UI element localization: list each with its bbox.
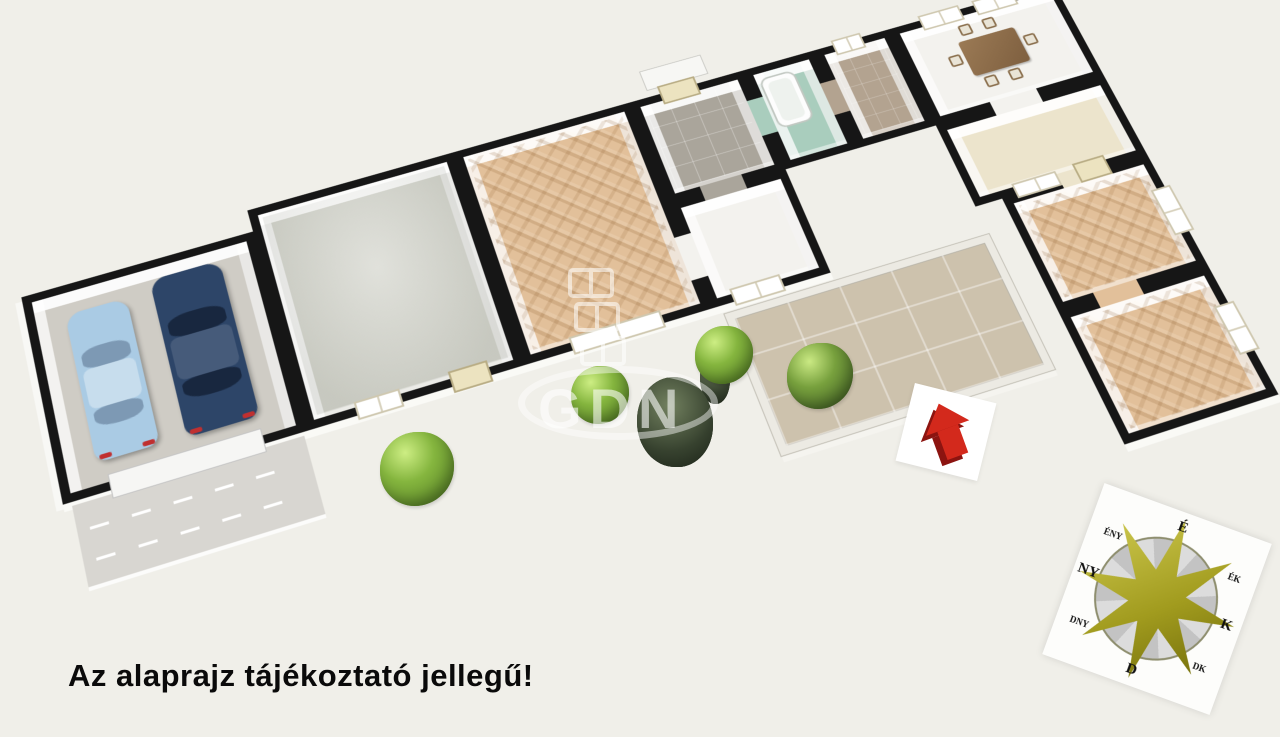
compass-label-southeast: DK [1191, 661, 1207, 675]
car-taillight [99, 451, 112, 459]
compass-label-southwest: DNY [1068, 614, 1090, 630]
compass-label-northeast: ÉK [1226, 571, 1242, 585]
tree-conifer [637, 377, 713, 467]
compass-label-northwest: ÉNY [1102, 526, 1123, 542]
disclaimer-text: Az alaprajz tájékoztató jellegű! [68, 658, 534, 694]
parking-marking [96, 494, 305, 561]
compass-rose: É ÉK K DK D DNY NY ÉNY [1042, 483, 1272, 715]
car-taillight [189, 426, 202, 434]
entrance-marker [898, 386, 994, 480]
floorplan-scene: GDN É ÉK K DK D DNY NY ÉNY Az alaprajz t… [0, 0, 1280, 737]
